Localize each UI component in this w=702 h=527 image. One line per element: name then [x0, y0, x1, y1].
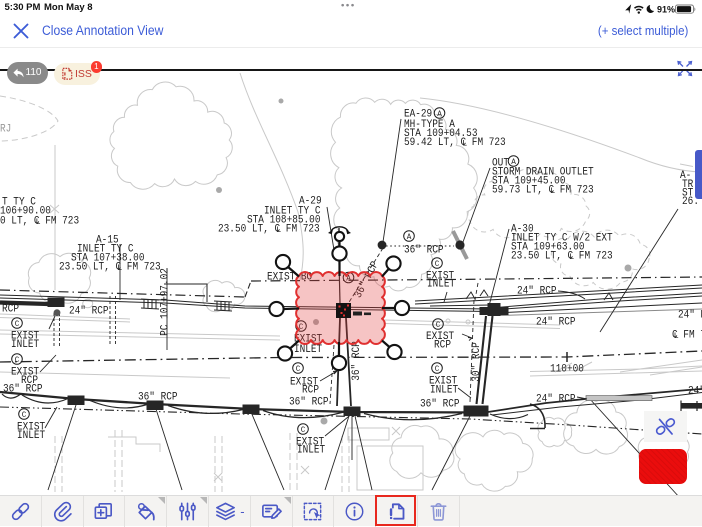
svg-text:24" RCP: 24" RCP — [536, 317, 576, 329]
svg-text:C: C — [435, 365, 440, 374]
svg-text:INLET: INLET — [294, 344, 323, 356]
svg-text:24": 24" — [688, 386, 702, 398]
svg-text:A: A — [437, 110, 442, 119]
svg-text:INLET: INLET — [427, 279, 456, 291]
svg-text:C: C — [15, 356, 20, 365]
svg-text:30" RCP: 30" RCP — [471, 342, 483, 382]
svg-text:36" RCP: 36" RCP — [3, 384, 43, 396]
svg-text:INLET: INLET — [430, 385, 459, 397]
svg-text:24" RCP: 24" RCP — [69, 306, 109, 318]
svg-text:RCP: RCP — [302, 385, 319, 397]
svg-text:C: C — [296, 365, 301, 374]
svg-text:91%: 91% — [657, 4, 675, 14]
svg-text:23.50 LT, C FM 723: 23.50 LT, C FM 723 — [511, 251, 613, 263]
svg-text:L: L — [674, 331, 679, 341]
svg-text:36" RCP: 36" RCP — [289, 397, 329, 409]
svg-text:C: C — [301, 426, 306, 435]
svg-text:INLET: INLET — [17, 430, 46, 442]
svg-text:L: L — [117, 263, 122, 273]
svg-text:PC 107+97.02: PC 107+97.02 — [160, 268, 172, 336]
svg-text:23.50 LT, C FM 723: 23.50 LT, C FM 723 — [218, 224, 320, 236]
svg-text:24" RCP: 24" RCP — [536, 394, 576, 406]
svg-text:36" RCP: 36" RCP — [404, 245, 444, 257]
svg-text:L: L — [462, 139, 467, 149]
svg-text:RJ: RJ — [0, 124, 11, 136]
svg-text:C: C — [435, 260, 440, 269]
svg-text:L: L — [276, 225, 281, 235]
svg-text:36" RCP: 36" RCP — [351, 341, 363, 381]
svg-text:RCP: RCP — [2, 304, 19, 316]
svg-text:A: A — [407, 233, 412, 242]
svg-text:23.50 LT, C FM 723: 23.50 LT, C FM 723 — [59, 262, 161, 274]
svg-text:24" R: 24" R — [678, 310, 702, 322]
svg-text:L: L — [550, 186, 555, 196]
svg-text:24" RCP: 24" RCP — [517, 286, 557, 298]
svg-text:INLET: INLET — [297, 445, 326, 457]
svg-text:A: A — [511, 158, 516, 167]
svg-text:C: C — [436, 321, 441, 330]
svg-text:36" RCP: 36" RCP — [420, 399, 460, 411]
svg-text:C: C — [22, 411, 27, 420]
svg-text:36" RCP: 36" RCP — [138, 392, 178, 404]
svg-text:110+00: 110+00 — [550, 364, 584, 376]
svg-text:C: C — [15, 320, 20, 329]
svg-text:L: L — [569, 252, 574, 262]
svg-text:59.73 LT, C FM 723: 59.73 LT, C FM 723 — [492, 185, 594, 197]
svg-text:59.42 LT, C FM 723: 59.42 LT, C FM 723 — [404, 137, 506, 149]
svg-text:L: L — [36, 217, 41, 227]
svg-text:INLET: INLET — [11, 339, 40, 351]
svg-text:RCP: RCP — [434, 340, 451, 352]
